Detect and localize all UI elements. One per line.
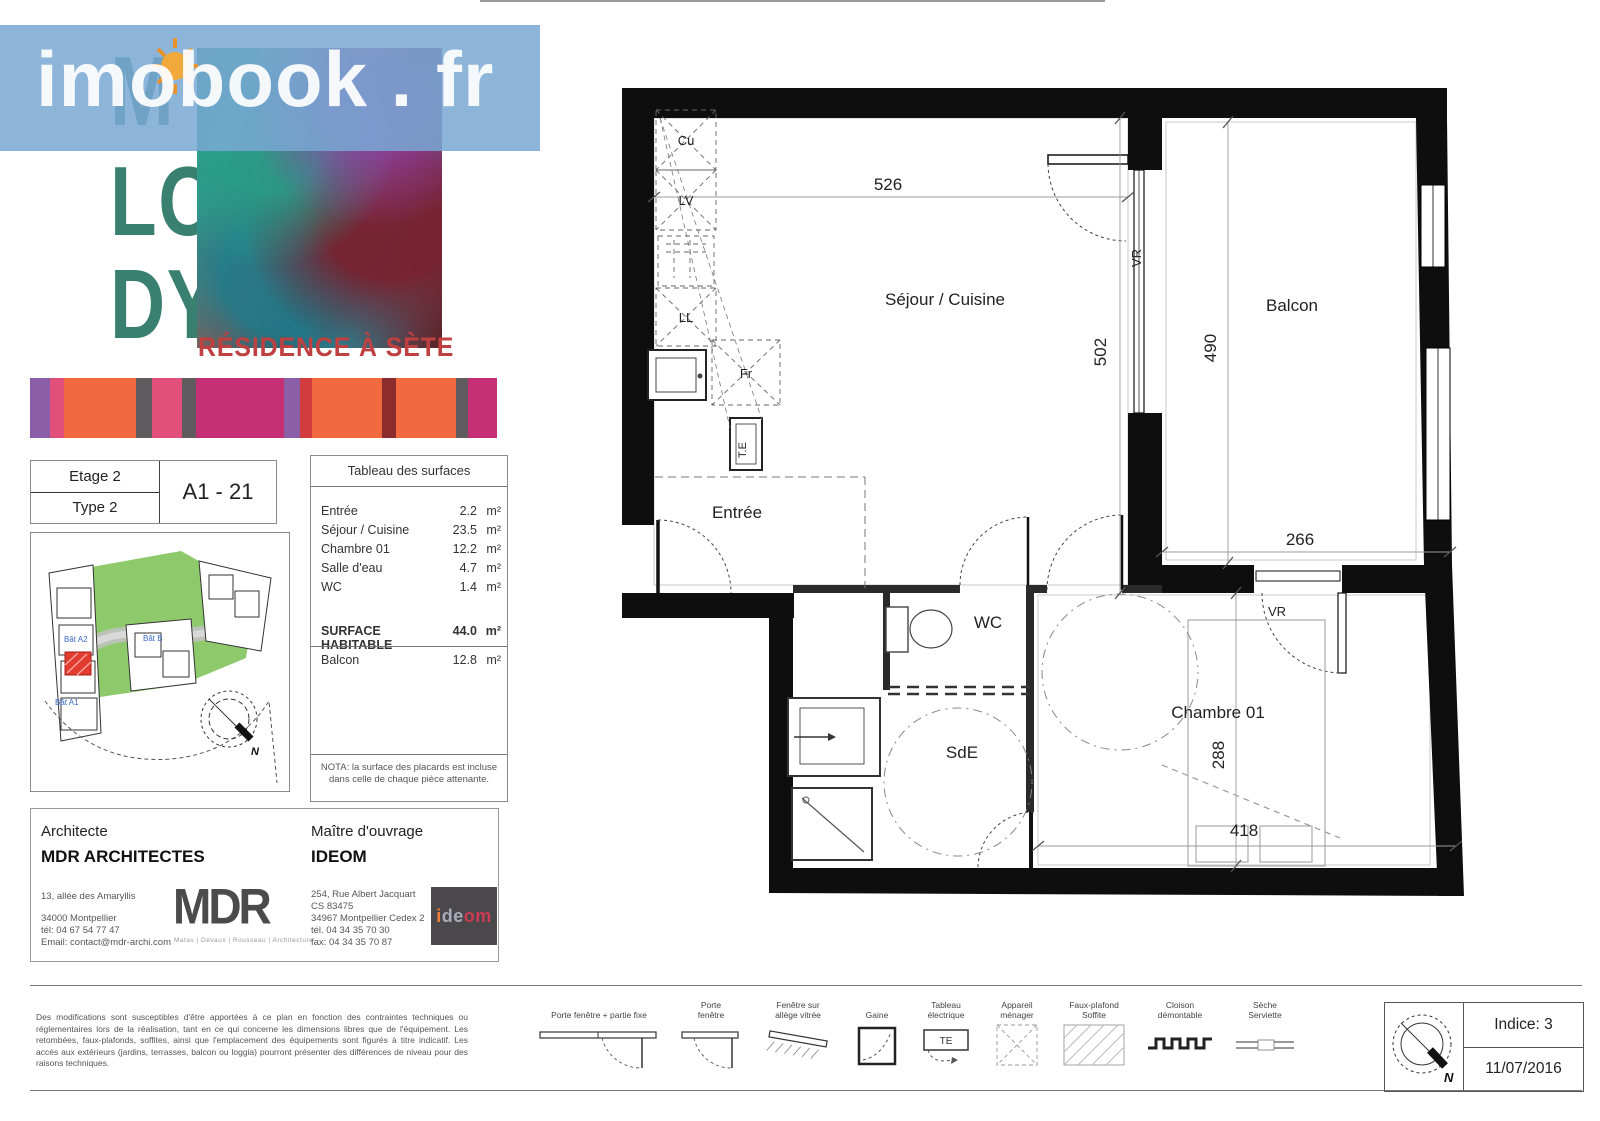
legend-item: Porte fenêtre + partie fixe [538, 998, 660, 1070]
highlighted-unit [65, 652, 91, 675]
label-vr-chambre: VR [1268, 604, 1286, 619]
dim-sejour-height: 502 [1091, 338, 1110, 366]
row-label: WC [321, 580, 441, 594]
te-icon-text: TE [940, 1036, 953, 1047]
room-label-sejour: Séjour / Cuisine [885, 290, 1005, 309]
ideom-logo: i de om [431, 887, 497, 945]
legend-item: Faux-plafond Soffite [1062, 998, 1126, 1070]
balcon-label: Balcon [321, 653, 441, 667]
legend-label: Porte fenêtre + partie fixe [551, 998, 647, 1020]
site-compass-n: N [251, 746, 260, 758]
owner-address-3: 34967 Montpellier Cedex 2 [311, 913, 425, 925]
surface-nota: NOTA: la surface des placards est inclus… [315, 762, 503, 786]
title-block-compass-cell: N [1385, 1003, 1464, 1091]
compass-n-letter: N [1444, 1070, 1454, 1085]
dim-sejour-width: 526 [874, 175, 902, 194]
room-label-entree: Entrée [712, 503, 762, 522]
legend-label: Faux-plafond Soffite [1069, 998, 1119, 1020]
owner-name: IDEOM [311, 847, 367, 867]
balcon-unit: m² [477, 653, 501, 667]
row-label: Chambre 01 [321, 542, 441, 556]
legend-label: Porte fenêtre [698, 998, 724, 1020]
row-value: 23.5 [441, 523, 477, 537]
row-label: Salle d'eau [321, 561, 441, 575]
entry-closet-dashed [655, 477, 865, 588]
bottom-strip-bottom-line [30, 1090, 1582, 1091]
owner-heading: Maître d'ouvrage [311, 823, 423, 840]
dim-chambre-height: 288 [1209, 741, 1228, 769]
owner-phone: tél. 04 34 35 70 30 [311, 925, 390, 937]
fenetre-allege-icon [762, 1020, 834, 1070]
exterior-walls [622, 88, 1464, 896]
site-label-bat-a2: Bât A2 [64, 635, 88, 644]
architect-address-2: 34000 Montpellier [41, 913, 117, 925]
row-unit: m² [477, 523, 501, 537]
table-row: Chambre 01 12.2 m² [321, 542, 501, 556]
top-border-line [480, 0, 1105, 2]
sanitary-fixtures [788, 607, 952, 860]
table-row: Salle d'eau 4.7 m² [321, 561, 501, 575]
owner-fax: fax: 04 34 35 70 87 [311, 937, 392, 949]
row-label: Entrée [321, 504, 441, 518]
gaine-icon [854, 1020, 900, 1070]
legend-label: Tableau électrique [928, 998, 965, 1020]
divider [311, 486, 507, 487]
faux-plafond-icon [1062, 1020, 1126, 1070]
title-block: N Indice: 3 11/07/2016 [1384, 1002, 1584, 1092]
table-row: WC 1.4 m² [321, 580, 501, 594]
brand-subtitle: RÉSIDENCE À SÈTE [198, 332, 454, 363]
symbols-legend: Porte fenêtre + partie fixe Porte fenêtr… [538, 998, 1338, 1070]
floor-plan-drawing: 526 502 490 266 288 418 Séjour / Cuisine… [610, 80, 1600, 975]
label-te: T.E [737, 442, 749, 458]
legend-item: Sèche Serviette [1234, 998, 1296, 1070]
architect-owner-block: Architecte MDR ARCHITECTES 13, allée des… [30, 808, 499, 962]
electrical-panel [660, 118, 762, 470]
surface-total-row: SURFACE HABITABLE 44.0 m² [321, 624, 501, 652]
label-vr-sejour: VR [1129, 249, 1144, 267]
row-value: 2.2 [441, 504, 477, 518]
legend-label: Fenêtre sur allège vitrée [775, 998, 821, 1020]
table-row: Séjour / Cuisine 23.5 m² [321, 523, 501, 537]
brand-letter-row3: DY [110, 255, 196, 353]
porte-fenetre-partie-fixe-icon [538, 1020, 660, 1070]
balcon-value: 12.8 [441, 653, 477, 667]
legend-item: Appareil ménager [992, 998, 1042, 1070]
north-compass-icon: N [1388, 1006, 1460, 1088]
owner-address-1: 254, Rue Albert Jacquart [311, 889, 416, 901]
surface-table-title: Tableau des surfaces [311, 463, 507, 478]
row-unit: m² [477, 561, 501, 575]
legend-label: Sèche Serviette [1248, 998, 1282, 1020]
room-label-wc: WC [974, 613, 1002, 632]
site-label-bat-b: Bât B [143, 634, 163, 643]
label-cu: Cu [678, 133, 695, 148]
legend-item: Fenêtre sur allège vitrée [762, 998, 834, 1070]
revision-index: Indice: 3 [1464, 1003, 1583, 1048]
label-ll: LL [679, 310, 693, 325]
mdr-logo-tagline: Matas | Devaux | Rousseau | Architecture [174, 937, 313, 944]
legend-label: Gaine [866, 998, 889, 1020]
architect-phone: tél: 04 67 54 77 47 [41, 925, 120, 937]
ideom-logo-de: de [442, 906, 464, 927]
legend-label: Appareil ménager [1000, 998, 1034, 1020]
bottom-strip-top-line [30, 985, 1582, 986]
legend-item: Gaine [854, 998, 900, 1070]
row-value: 1.4 [441, 580, 477, 594]
divider [311, 646, 507, 647]
site-plan-box: Bât A2 Bât B Bât A1 N [30, 532, 290, 792]
total-unit: m² [477, 624, 501, 638]
disclaimer-text: Des modifications sont susceptibles d'êt… [36, 1012, 468, 1070]
title-block-fields: Indice: 3 11/07/2016 [1464, 1003, 1583, 1091]
unit-info-box: Etage 2 Type 2 A1 - 21 [30, 460, 277, 524]
surface-table: Tableau des surfaces Entrée 2.2 m² Séjou… [310, 455, 508, 802]
row-value: 12.2 [441, 542, 477, 556]
label-lv: LV [679, 193, 694, 208]
ideom-logo-om: om [464, 906, 492, 927]
dim-balcon-height: 490 [1201, 334, 1220, 362]
divider [311, 754, 507, 755]
site-plan-map: Bât A2 Bât B Bât A1 N [31, 533, 287, 789]
legend-item: Tableau électrique TE [920, 998, 972, 1070]
porte-fenetre-icon [680, 1020, 742, 1070]
removable-partition [888, 687, 1030, 694]
legend-label: Cloison démontable [1158, 998, 1202, 1020]
dim-balcon-width: 266 [1286, 530, 1314, 549]
cloison-demontable-icon [1146, 1020, 1214, 1070]
site-compass-icon: N [201, 691, 260, 758]
legend-item: Porte fenêtre [680, 998, 742, 1070]
row-unit: m² [477, 580, 501, 594]
dim-chambre-width: 418 [1230, 821, 1258, 840]
room-label-balcon: Balcon [1266, 296, 1318, 315]
unit-floor-type: Etage 2 Type 2 [31, 461, 160, 523]
unit-type: Type 2 [31, 493, 159, 524]
row-unit: m² [477, 542, 501, 556]
unit-code: A1 - 21 [160, 461, 276, 523]
brand-letter-row2: LO [110, 152, 196, 250]
room-label-sde: SdE [946, 743, 978, 762]
plan-date: 11/07/2016 [1464, 1048, 1583, 1092]
seche-serviette-icon [1234, 1020, 1296, 1070]
row-unit: m² [477, 504, 501, 518]
architect-email: Email: contact@mdr-archi.com [41, 937, 171, 949]
label-fr: Fr [740, 366, 753, 381]
table-row: Entrée 2.2 m² [321, 504, 501, 518]
site-label-bat-a1: Bât A1 [55, 698, 79, 707]
owner-address-2: CS 83475 [311, 901, 353, 913]
architect-address-1: 13, allée des Amaryllis [41, 891, 136, 903]
room-label-chambre: Chambre 01 [1171, 703, 1265, 722]
appareil-menager-icon [992, 1020, 1042, 1070]
architect-name: MDR ARCHITECTES [41, 847, 205, 867]
plan-sheet: M LO DY imobook . fr RÉSIDENCE À SÈTE Et… [0, 0, 1600, 1121]
row-value: 4.7 [441, 561, 477, 575]
balcony-row: Balcon 12.8 m² [321, 653, 501, 667]
legend-item: Cloison démontable [1146, 998, 1214, 1070]
unit-floor: Etage 2 [31, 461, 159, 493]
architect-heading: Architecte [41, 823, 108, 840]
total-label: SURFACE HABITABLE [321, 624, 441, 652]
total-value: 44.0 [441, 624, 477, 638]
tableau-electrique-icon: TE [920, 1020, 972, 1070]
brand-stripe-bar [30, 378, 497, 438]
imobook-watermark: imobook . fr [36, 34, 596, 125]
row-label: Séjour / Cuisine [321, 523, 441, 537]
mdr-logo: MDR [173, 877, 269, 935]
